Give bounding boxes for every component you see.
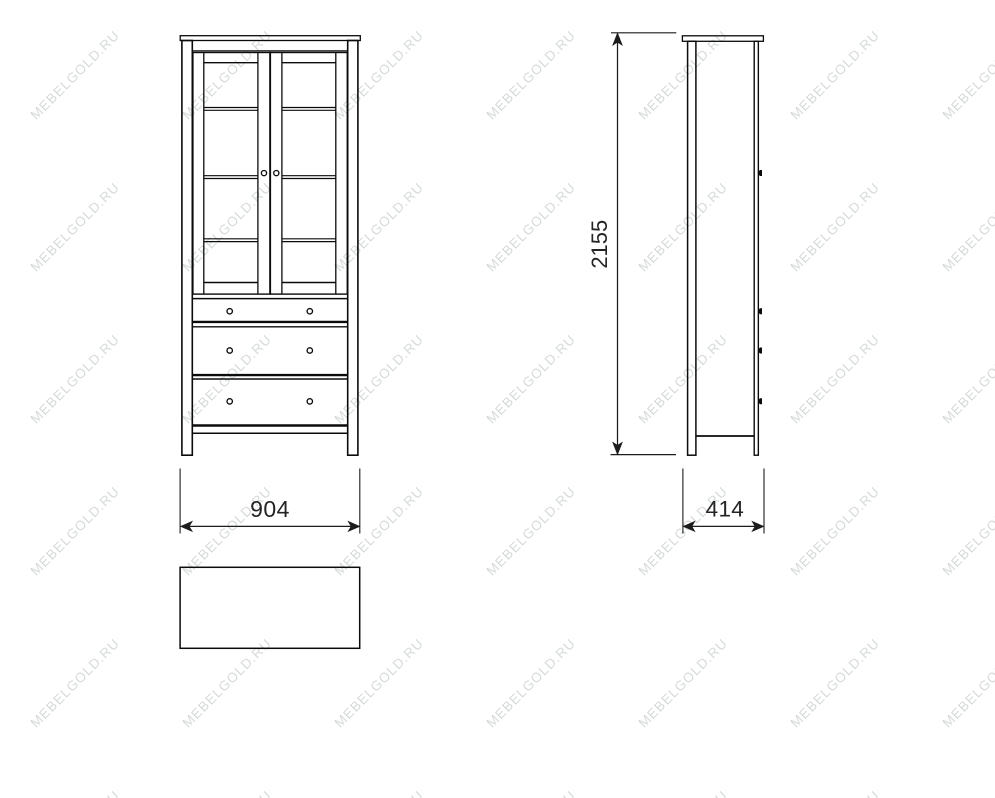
svg-text:414: 414 [706, 497, 744, 522]
svg-text:2155: 2155 [587, 220, 612, 269]
svg-text:904: 904 [250, 496, 290, 522]
